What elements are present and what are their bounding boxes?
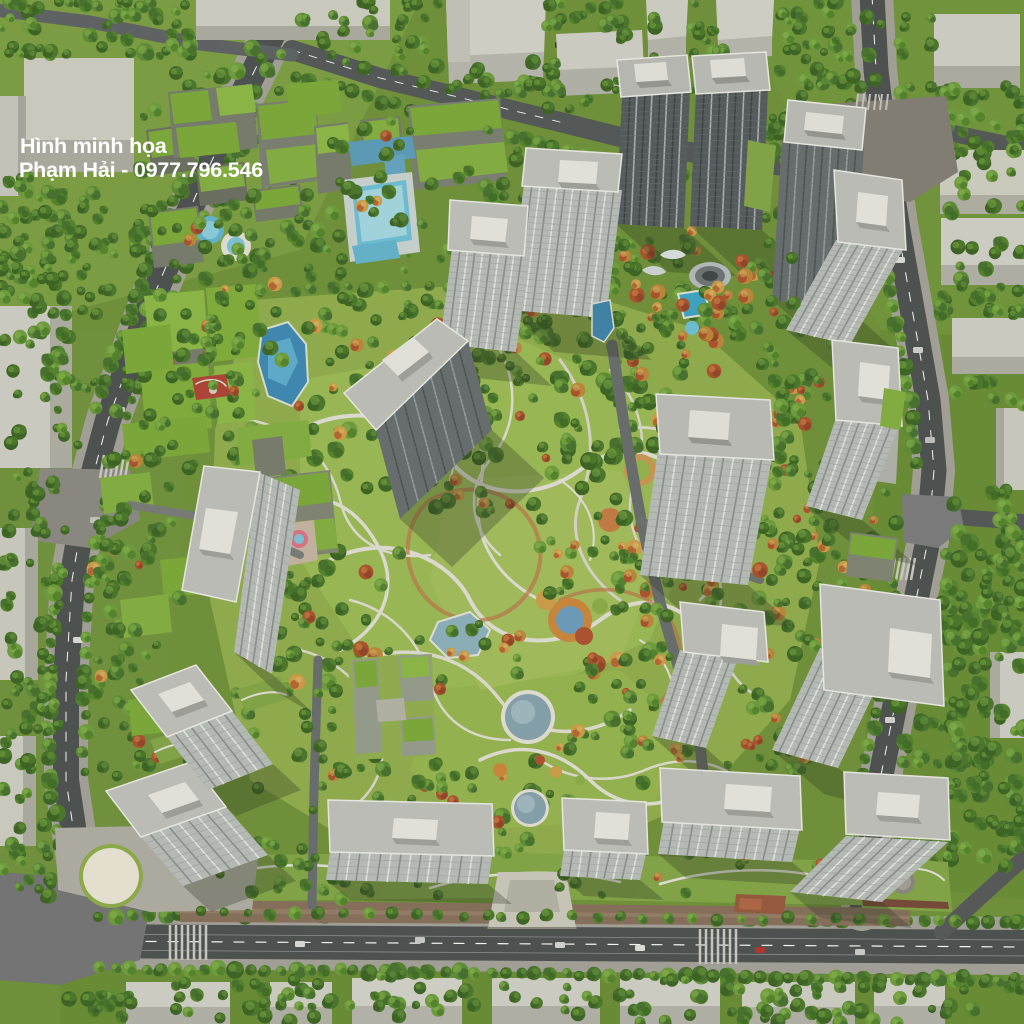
svg-text:Hình minh họa: Hình minh họa xyxy=(20,134,168,158)
svg-text:Phạm Hải - 0977.796.546: Phạm Hải - 0977.796.546 xyxy=(19,158,263,182)
